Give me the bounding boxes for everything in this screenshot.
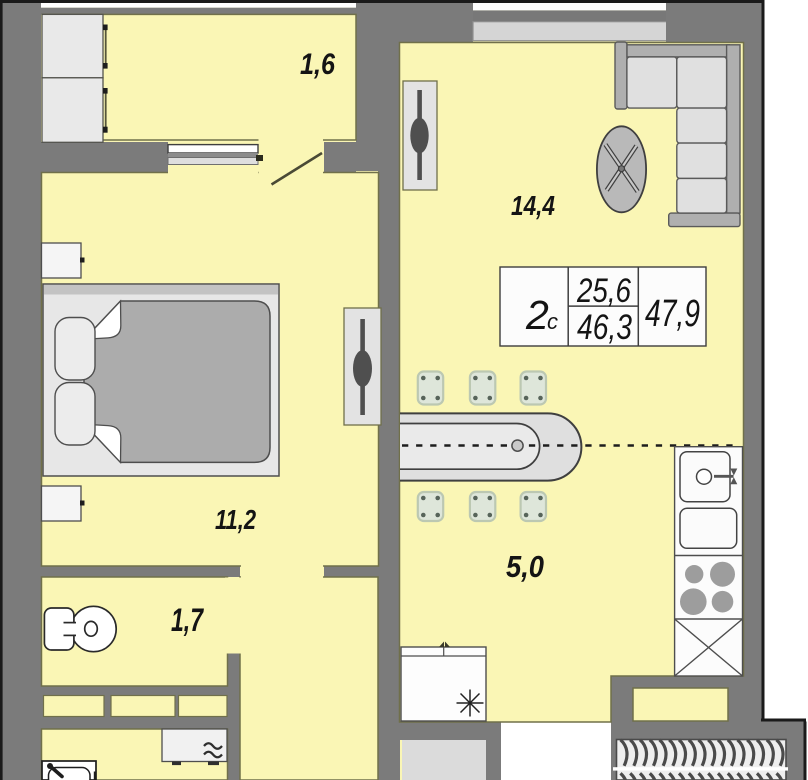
svg-text:46,3: 46,3 bbox=[577, 308, 632, 347]
svg-text:1,7: 1,7 bbox=[171, 602, 205, 638]
svg-text:25,6: 25,6 bbox=[576, 272, 631, 310]
svg-text:5,0: 5,0 bbox=[506, 549, 544, 584]
svg-text:47,9: 47,9 bbox=[645, 293, 700, 335]
svg-text:2: 2 bbox=[525, 292, 549, 338]
svg-text:14,4: 14,4 bbox=[511, 190, 555, 221]
svg-text:1,6: 1,6 bbox=[300, 48, 335, 81]
svg-text:с: с bbox=[547, 309, 558, 334]
svg-text:11,2: 11,2 bbox=[215, 504, 256, 535]
